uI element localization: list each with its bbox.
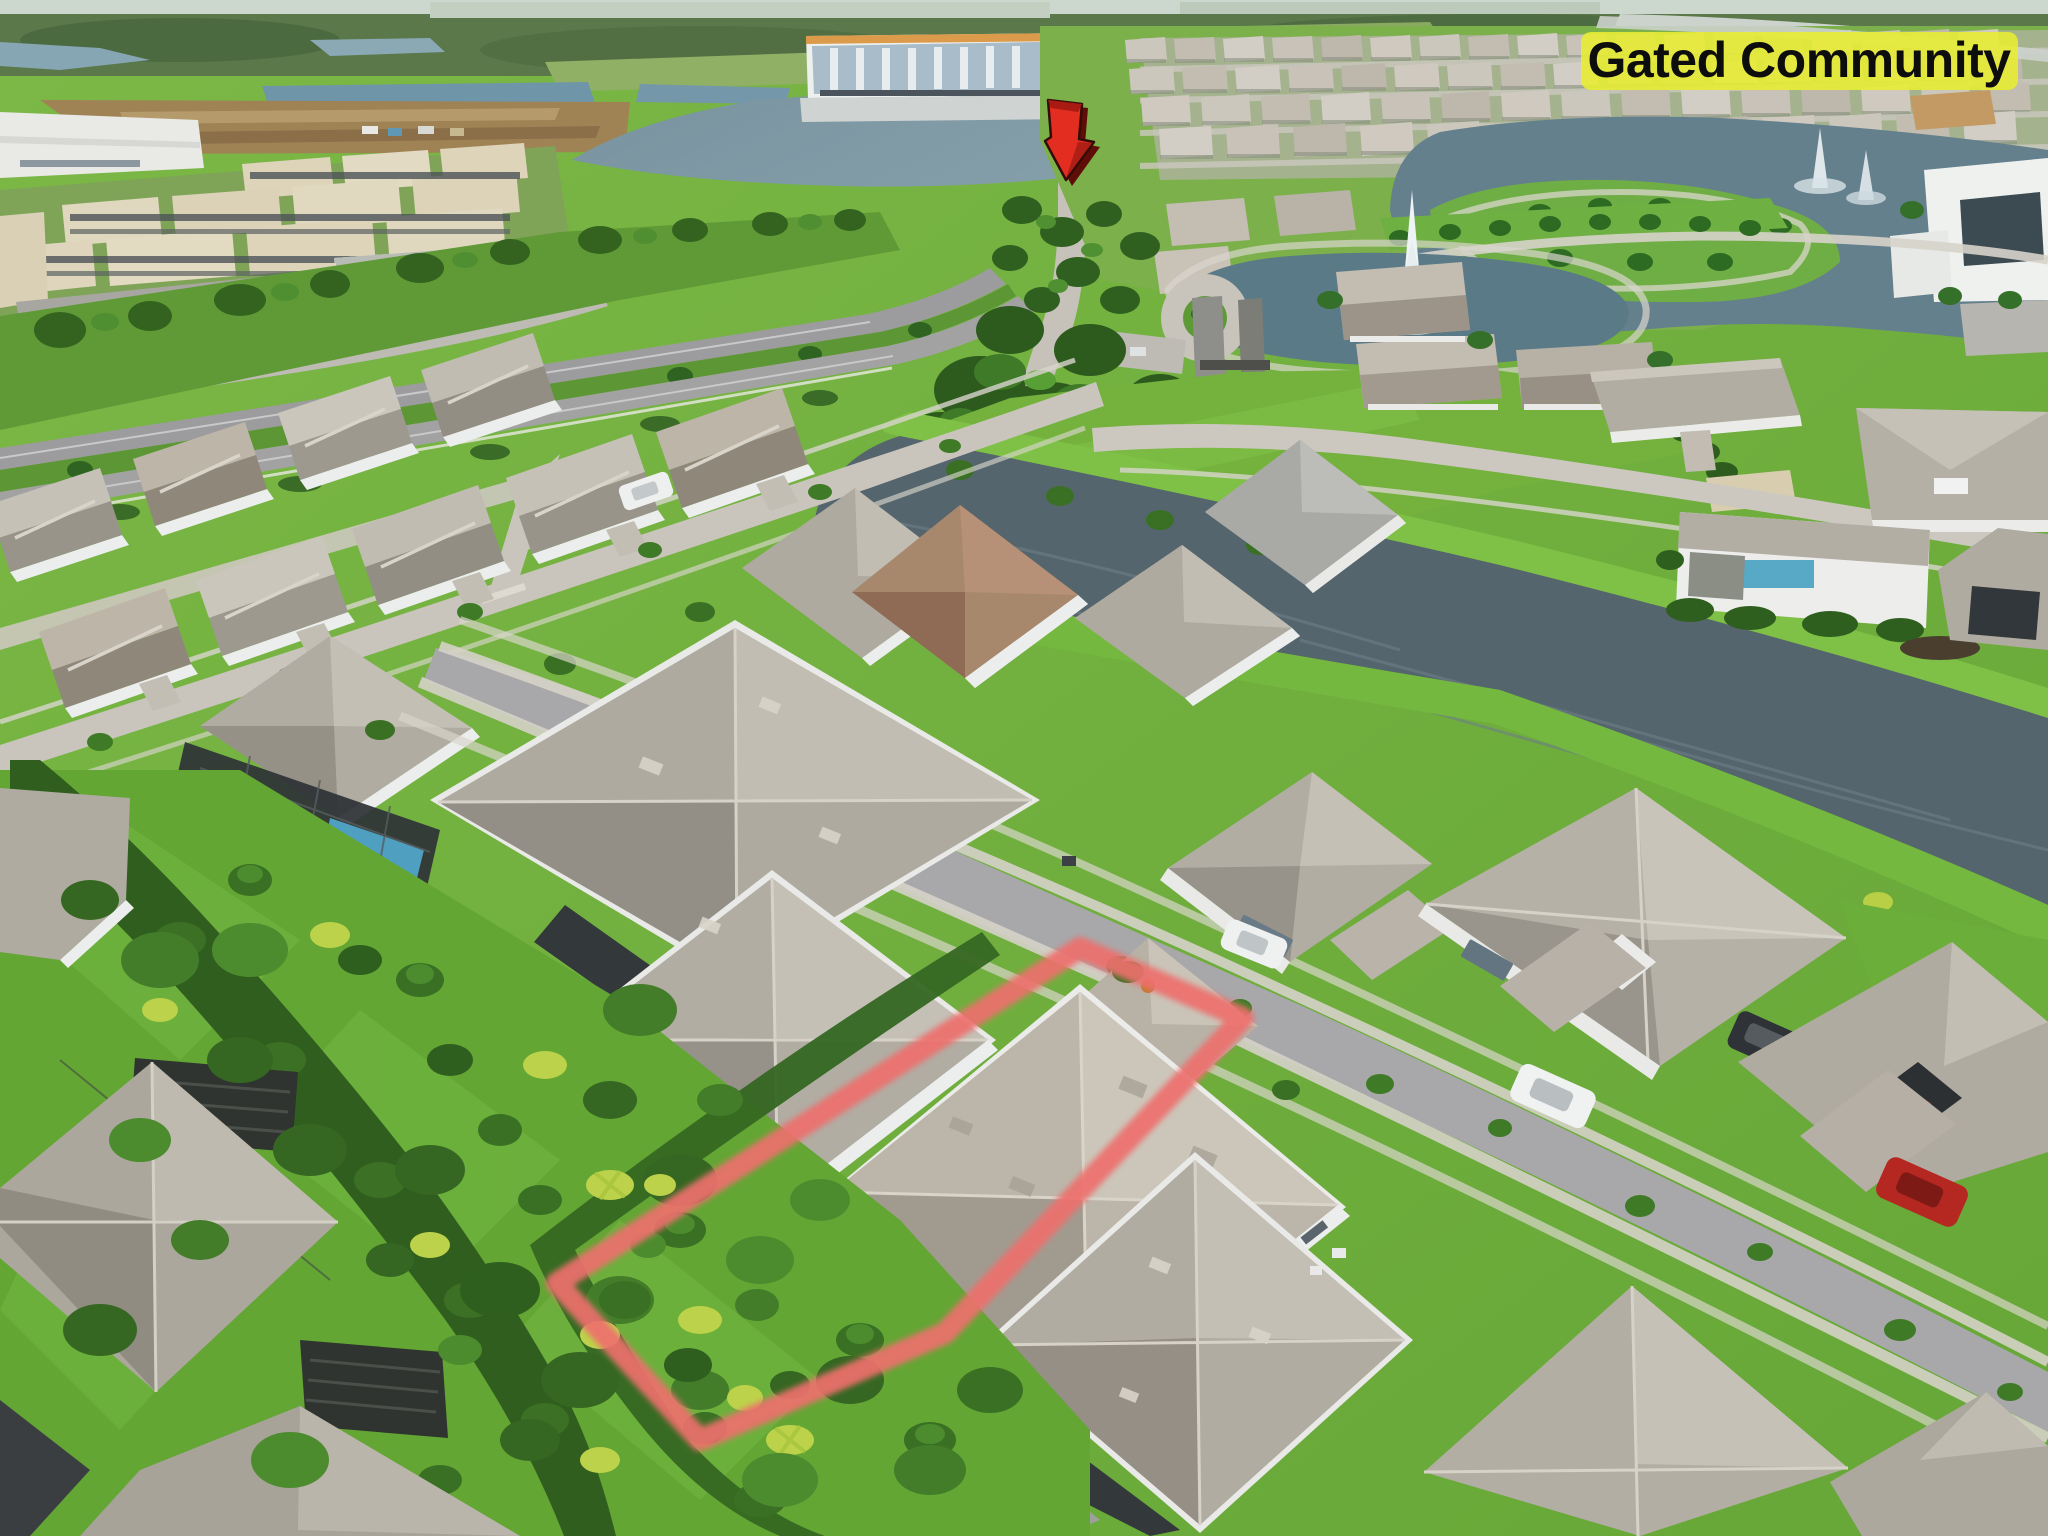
svg-text:Gated Community: Gated Community (1587, 32, 2011, 88)
